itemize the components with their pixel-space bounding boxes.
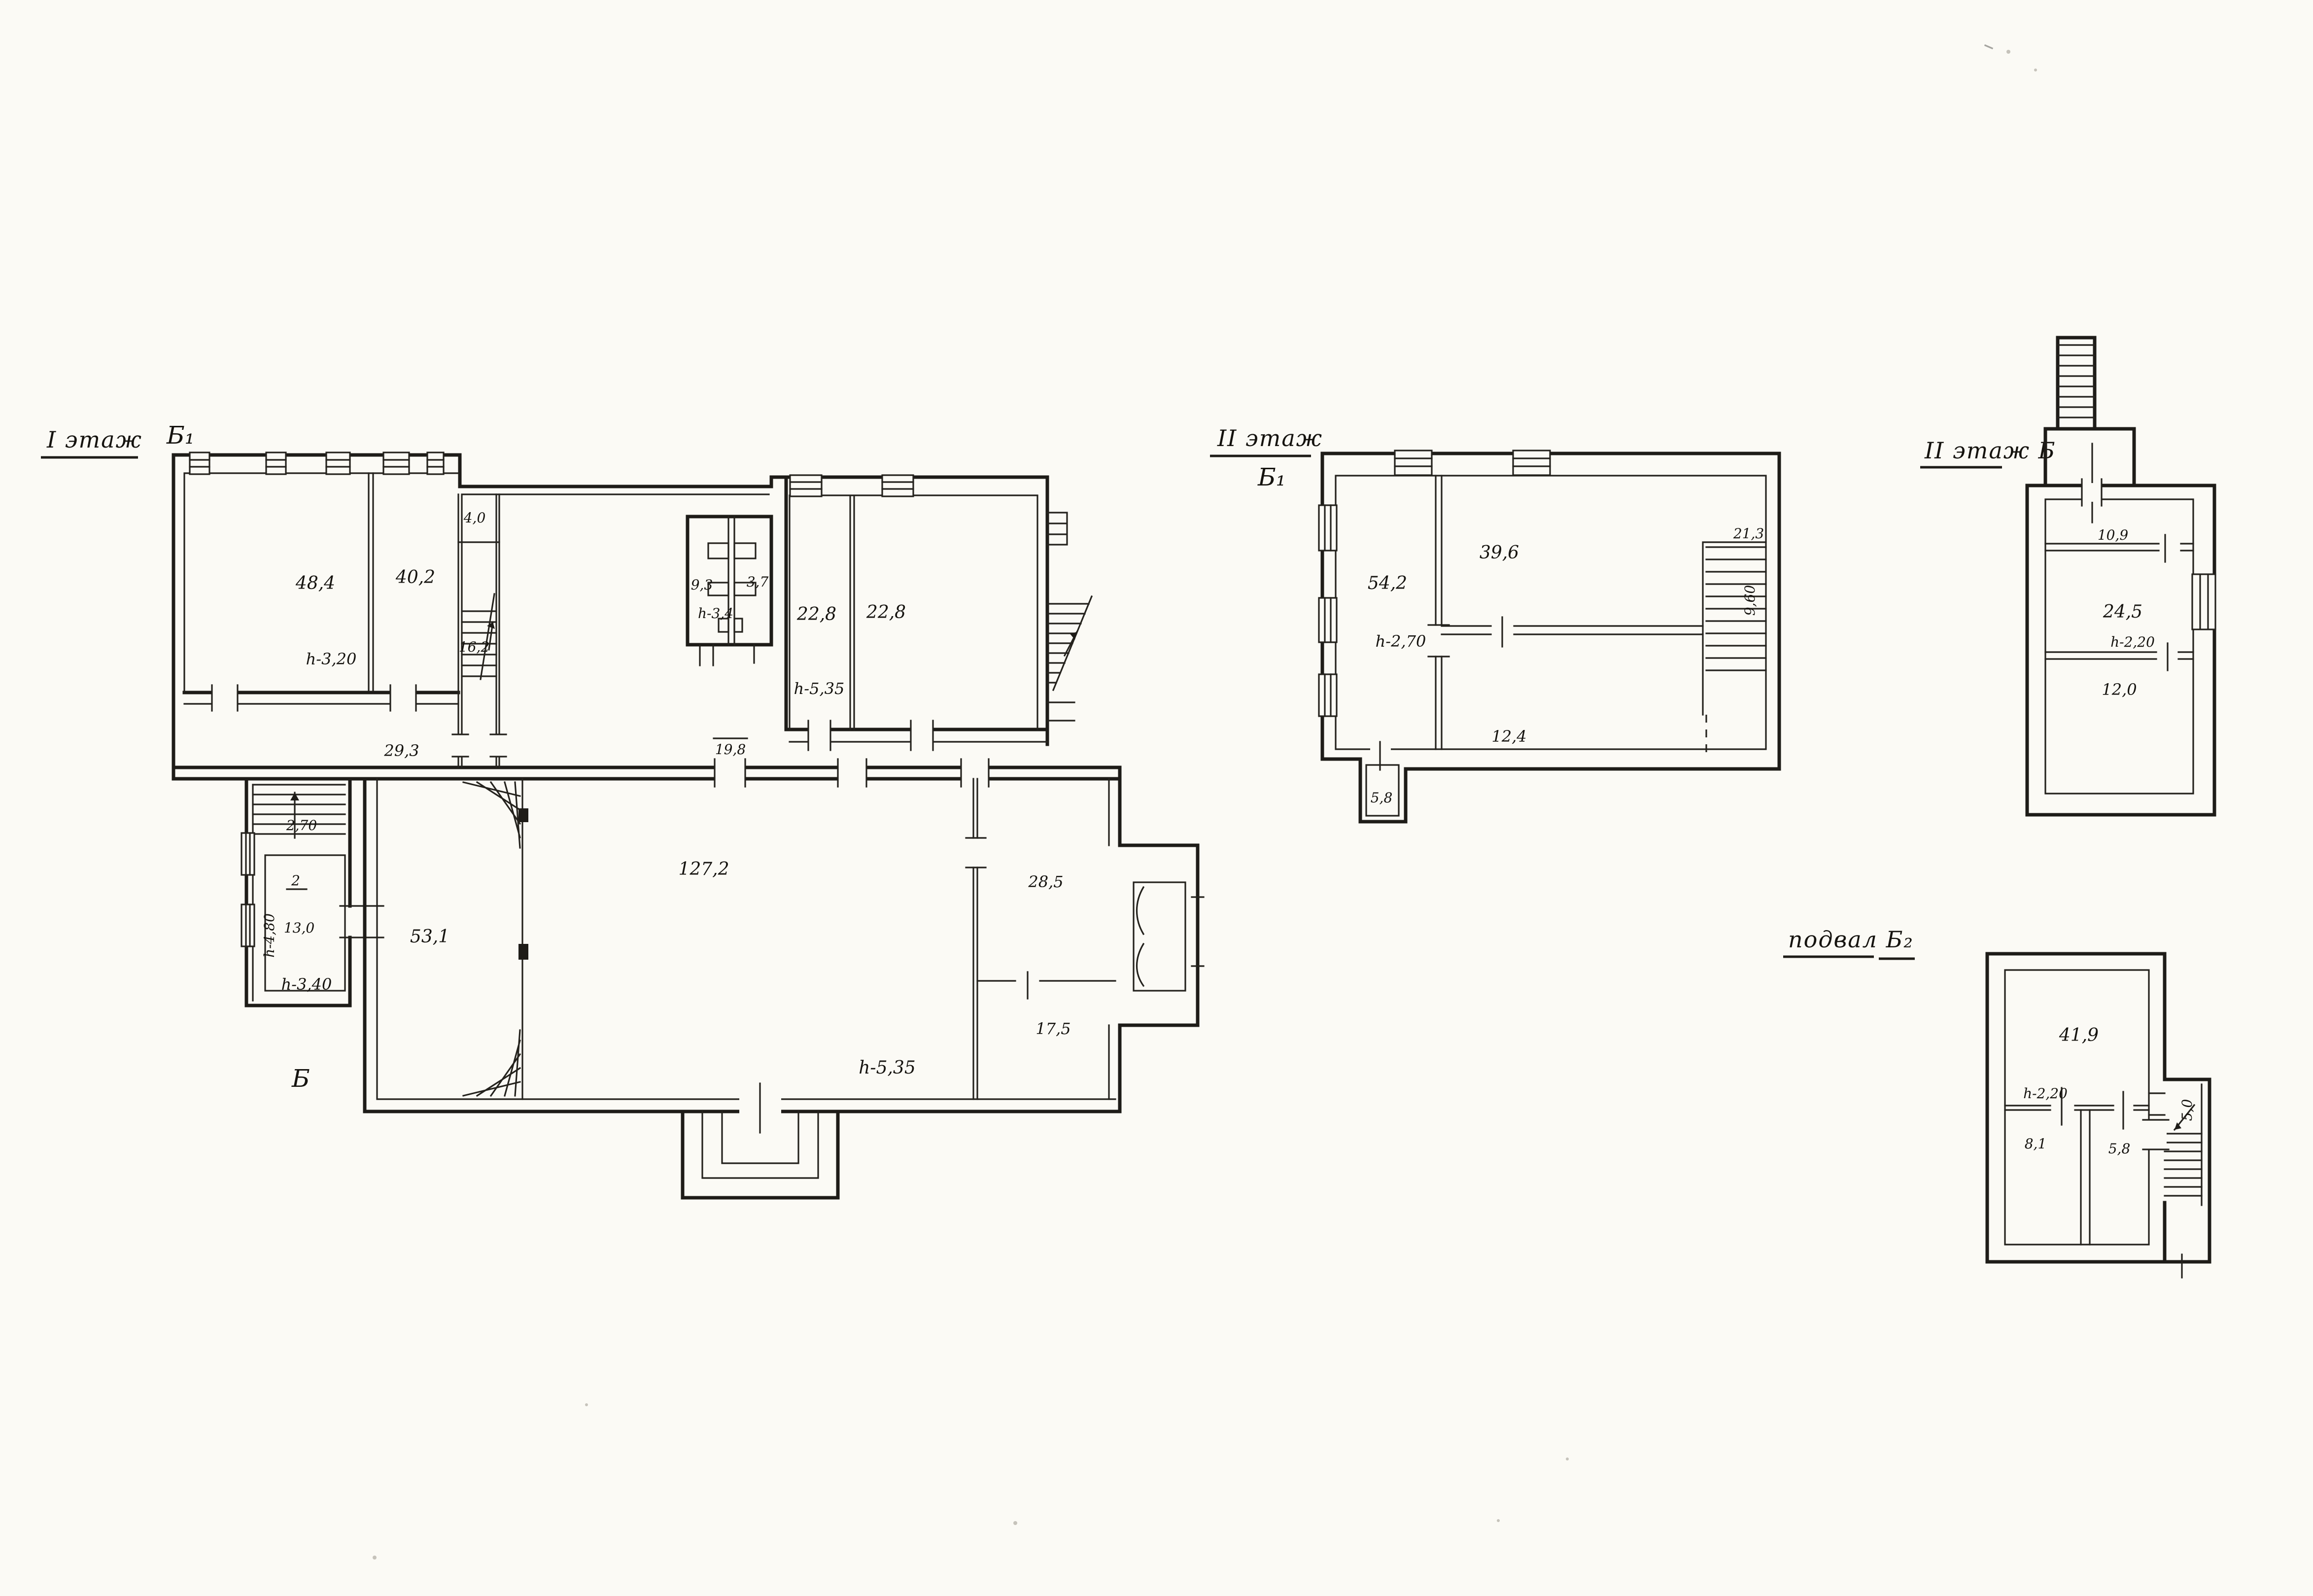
facade-windows	[2192, 574, 2215, 629]
southeast-rooms	[966, 767, 1204, 1111]
hall-door-openings	[715, 759, 989, 787]
building-block-marker: Б₁	[1257, 463, 1286, 491]
floor-title: II этаж	[1217, 425, 1323, 451]
room-area-label: 12,4	[1491, 727, 1526, 746]
room-area-label: 8,1	[2025, 1136, 2047, 1152]
room-area-label: 48,4	[295, 573, 335, 593]
floor-plan-canvas: I этаж Б₁ Б 48,4 h-3,20 40,2	[0, 0, 2313, 1596]
ceiling-height-label: h-3,20	[306, 650, 357, 668]
room-area-label: 22,8	[866, 602, 906, 623]
interior-walls	[1428, 476, 1766, 759]
exterior-walls	[1987, 954, 2209, 1262]
room-area-label: 3,7	[747, 574, 769, 590]
room-number-label: 2	[291, 872, 300, 889]
room-area-label: 39,6	[1480, 543, 1519, 563]
ceiling-height-label: h-2,70	[1376, 632, 1426, 651]
floor-title: II этаж Б	[1924, 437, 2056, 464]
great-hall	[365, 779, 1120, 1133]
stair-corridor	[452, 494, 506, 767]
room-area-label: 24,5	[2103, 602, 2142, 622]
building-block-marker: Б₁	[166, 421, 195, 450]
room-area-label: 17,5	[1036, 1019, 1070, 1038]
floor-title: I этаж	[46, 426, 142, 453]
ceiling-height-label-rotated: h-4,80	[261, 913, 277, 958]
ceiling-height-label: h-5,35	[794, 679, 845, 698]
west-annex	[242, 779, 383, 1006]
room-area-label: 41,9	[2059, 1025, 2099, 1045]
room-area-label: 4,0	[463, 510, 486, 526]
room-area-label: 19,8	[715, 741, 746, 758]
room-area-label: 12,0	[2102, 680, 2137, 699]
plan-basement-b2: подвал Б₂ 41,9 h-2,20 8,1 5,8 5,0	[1783, 926, 2209, 1278]
room-area-label: 53,1	[410, 927, 449, 947]
stair-dimension-label-rotated: 5,0	[2179, 1099, 2195, 1121]
ceiling-height-label: h-2,20	[2023, 1085, 2068, 1102]
basement-entry-stair	[2143, 1079, 2209, 1262]
room-area-label: 28,5	[1028, 872, 1063, 891]
facade-windows	[190, 452, 913, 496]
exterior-stair	[2058, 338, 2095, 429]
ceiling-height-label: h-3,40	[281, 975, 332, 994]
room-area-label: 16,2	[459, 639, 489, 655]
ceiling-height-label: h-3,4	[698, 605, 733, 622]
room-area-label: 5,8	[1371, 790, 1393, 806]
plan-first-floor: I этаж Б₁ Б 48,4 h-3,20 40,2	[41, 421, 1204, 1198]
ceiling-height-label: h-2,20	[2110, 634, 2155, 650]
ceiling-height-label: h-5,35	[859, 1058, 916, 1078]
stair-dimension-label-rotated: 9,60	[1742, 585, 1758, 616]
room-area-label: 9,3	[691, 577, 713, 593]
room-area-label: 13,0	[284, 920, 314, 936]
scanned-floorplan-sheet: I этаж Б₁ Б 48,4 h-3,20 40,2	[0, 0, 2313, 1596]
plan-second-floor-b1: II этаж Б₁ 54,2 h-2	[1210, 425, 1779, 822]
floor-title: подвал Б₂	[1788, 926, 1914, 953]
exterior-side-stair	[1047, 596, 1092, 721]
room-area-label: 40,2	[395, 567, 435, 588]
room-area-label: 10,9	[2098, 527, 2128, 543]
title-underline	[1783, 957, 1915, 959]
vestibule	[2045, 429, 2134, 522]
room-area-label: 21,3	[1733, 525, 1764, 542]
plan-second-floor-b: II этаж Б 10,9 24,5 h-2,20 12,0	[1920, 338, 2215, 815]
stair-dimension-label: 2,70	[286, 817, 317, 833]
room-area-label: 5,8	[2108, 1141, 2131, 1157]
interior-walls	[2005, 1088, 2182, 1278]
facade-windows	[1319, 451, 1550, 716]
room-area-label: 29,3	[383, 741, 419, 760]
building-block-marker: Б	[291, 1064, 310, 1093]
room-area-label: 127,2	[678, 859, 729, 879]
room-area-label: 22,8	[796, 604, 836, 625]
scan-specks	[373, 45, 2037, 1560]
room-area-label: 54,2	[1368, 573, 1407, 593]
